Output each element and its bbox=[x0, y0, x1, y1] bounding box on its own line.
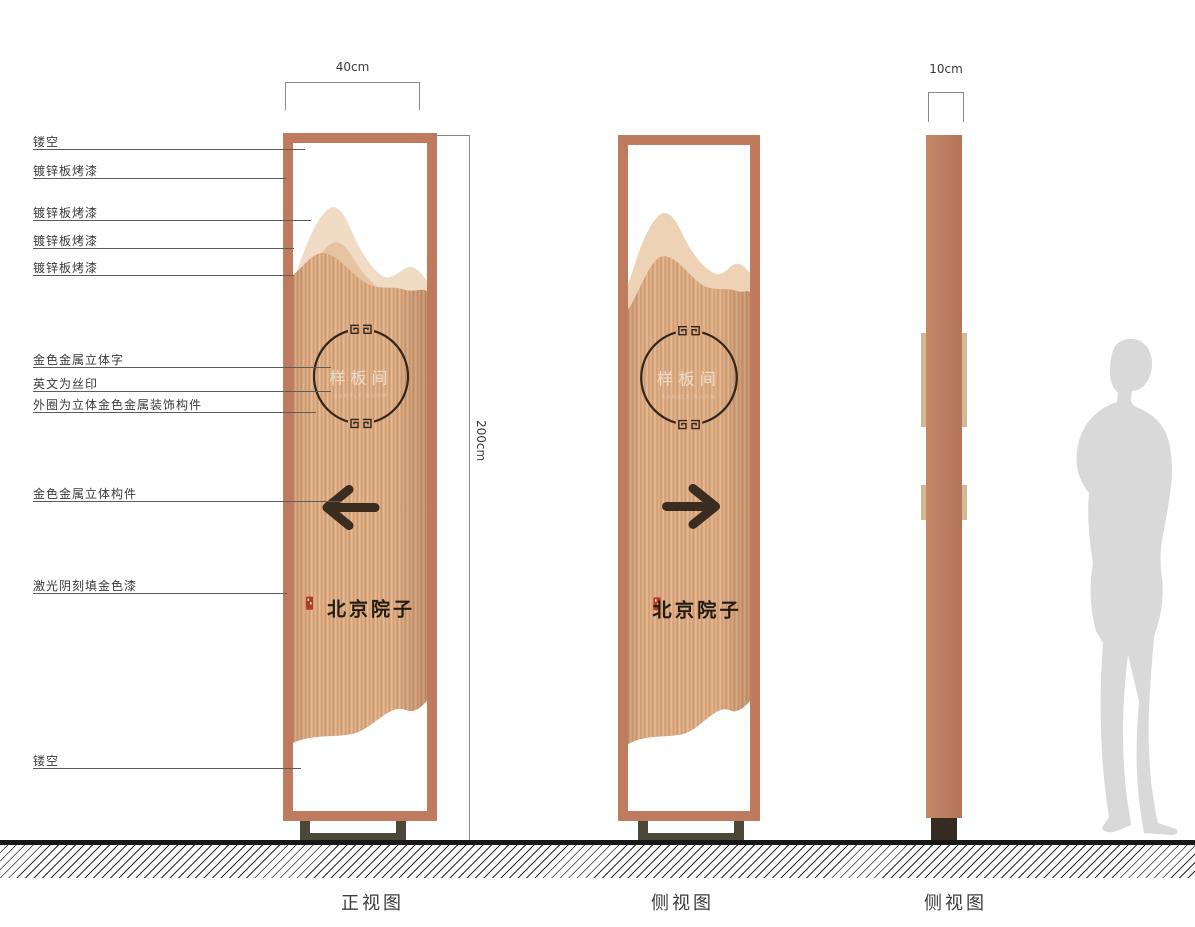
caption-side-view-2: 侧视图 bbox=[883, 889, 1028, 915]
leader-line bbox=[33, 412, 316, 413]
brand-text: 北京院子 bbox=[652, 598, 741, 621]
profile-plaque-protrusion-left bbox=[921, 333, 926, 427]
dimension-tick bbox=[928, 92, 929, 122]
callout-galvanized-paint-1: 镀锌板烤漆 bbox=[33, 162, 98, 179]
callout-gold-metal-letters: 金色金属立体字 bbox=[33, 351, 124, 368]
seal-mark bbox=[310, 602, 312, 604]
profile-plaque-protrusion-right bbox=[962, 333, 967, 427]
seal-mark bbox=[308, 599, 310, 601]
leader-line bbox=[33, 220, 311, 221]
plaque-text: 样板间 bbox=[330, 368, 393, 387]
leader-line bbox=[33, 248, 294, 249]
leader-line bbox=[33, 275, 294, 276]
plaque-text: 样板间 bbox=[657, 370, 721, 389]
dimension-tick bbox=[285, 82, 286, 110]
dimension-bracket-top bbox=[928, 92, 964, 93]
callout-hollow-top: 镂空 bbox=[33, 133, 59, 150]
ground-hatch bbox=[0, 845, 1195, 878]
signage-design-sheet: 样板间 SAMPLE ROOM 北京院子 bbox=[0, 0, 1195, 927]
dimension-height-tick bbox=[433, 135, 469, 136]
callout-galvanized-paint-3: 镀锌板烤漆 bbox=[33, 232, 98, 249]
callout-laser-engraving-gold: 激光阴刻填金色漆 bbox=[33, 577, 137, 594]
sign-side-view: 样板间 SAMPLE ROOM 北京院子 bbox=[618, 135, 760, 821]
ground-line bbox=[0, 840, 1195, 845]
dimension-bracket-top bbox=[285, 82, 420, 83]
caption-side-view-1: 侧视图 bbox=[610, 889, 755, 915]
profile-base-post bbox=[931, 818, 957, 842]
callout-hollow-bottom: 镂空 bbox=[33, 752, 59, 769]
dimension-height-line bbox=[469, 135, 470, 840]
seal-stamp bbox=[306, 597, 313, 610]
caption-front-view: 正视图 bbox=[300, 889, 445, 915]
sign-front-view: 样板间 SAMPLE ROOM 北京院子 bbox=[283, 133, 437, 821]
leader-line bbox=[33, 149, 305, 150]
brand-text: 北京院子 bbox=[327, 598, 415, 621]
leader-line bbox=[33, 178, 286, 179]
dimension-height: 200cm bbox=[474, 420, 488, 461]
callout-outer-ring-decoration: 外圈为立体金色金属装饰构件 bbox=[33, 396, 202, 413]
sign-front-artwork: 样板间 SAMPLE ROOM 北京院子 bbox=[293, 143, 427, 811]
leader-line bbox=[33, 501, 341, 502]
leader-line bbox=[33, 367, 331, 368]
plaque-subtext-english: SAMPLE ROOM bbox=[662, 395, 716, 401]
leader-line bbox=[33, 768, 301, 769]
dimension-width-side: 10cm bbox=[928, 62, 964, 76]
dimension-tick bbox=[419, 82, 420, 110]
plaque-subtext-english: SAMPLE ROOM bbox=[334, 393, 388, 399]
person-silhouette bbox=[1032, 337, 1195, 842]
sign-side-artwork: 样板间 SAMPLE ROOM 北京院子 bbox=[628, 145, 750, 811]
callout-gold-metal-component: 金色金属立体构件 bbox=[33, 485, 137, 502]
profile-arrow-protrusion-left bbox=[921, 485, 926, 520]
callout-galvanized-paint-4: 镀锌板烤漆 bbox=[33, 259, 98, 276]
leader-line bbox=[33, 391, 331, 392]
callout-galvanized-paint-2: 镀锌板烤漆 bbox=[33, 204, 98, 221]
dimension-tick bbox=[963, 92, 964, 122]
callout-english-silkscreen: 英文为丝印 bbox=[33, 375, 98, 392]
profile-arrow-protrusion-right bbox=[962, 485, 967, 520]
dimension-width-front: 40cm bbox=[285, 60, 420, 74]
sign-profile-bar bbox=[926, 135, 962, 818]
brand-calligraphy: 北京院子 bbox=[652, 597, 741, 621]
leader-line bbox=[33, 593, 287, 594]
